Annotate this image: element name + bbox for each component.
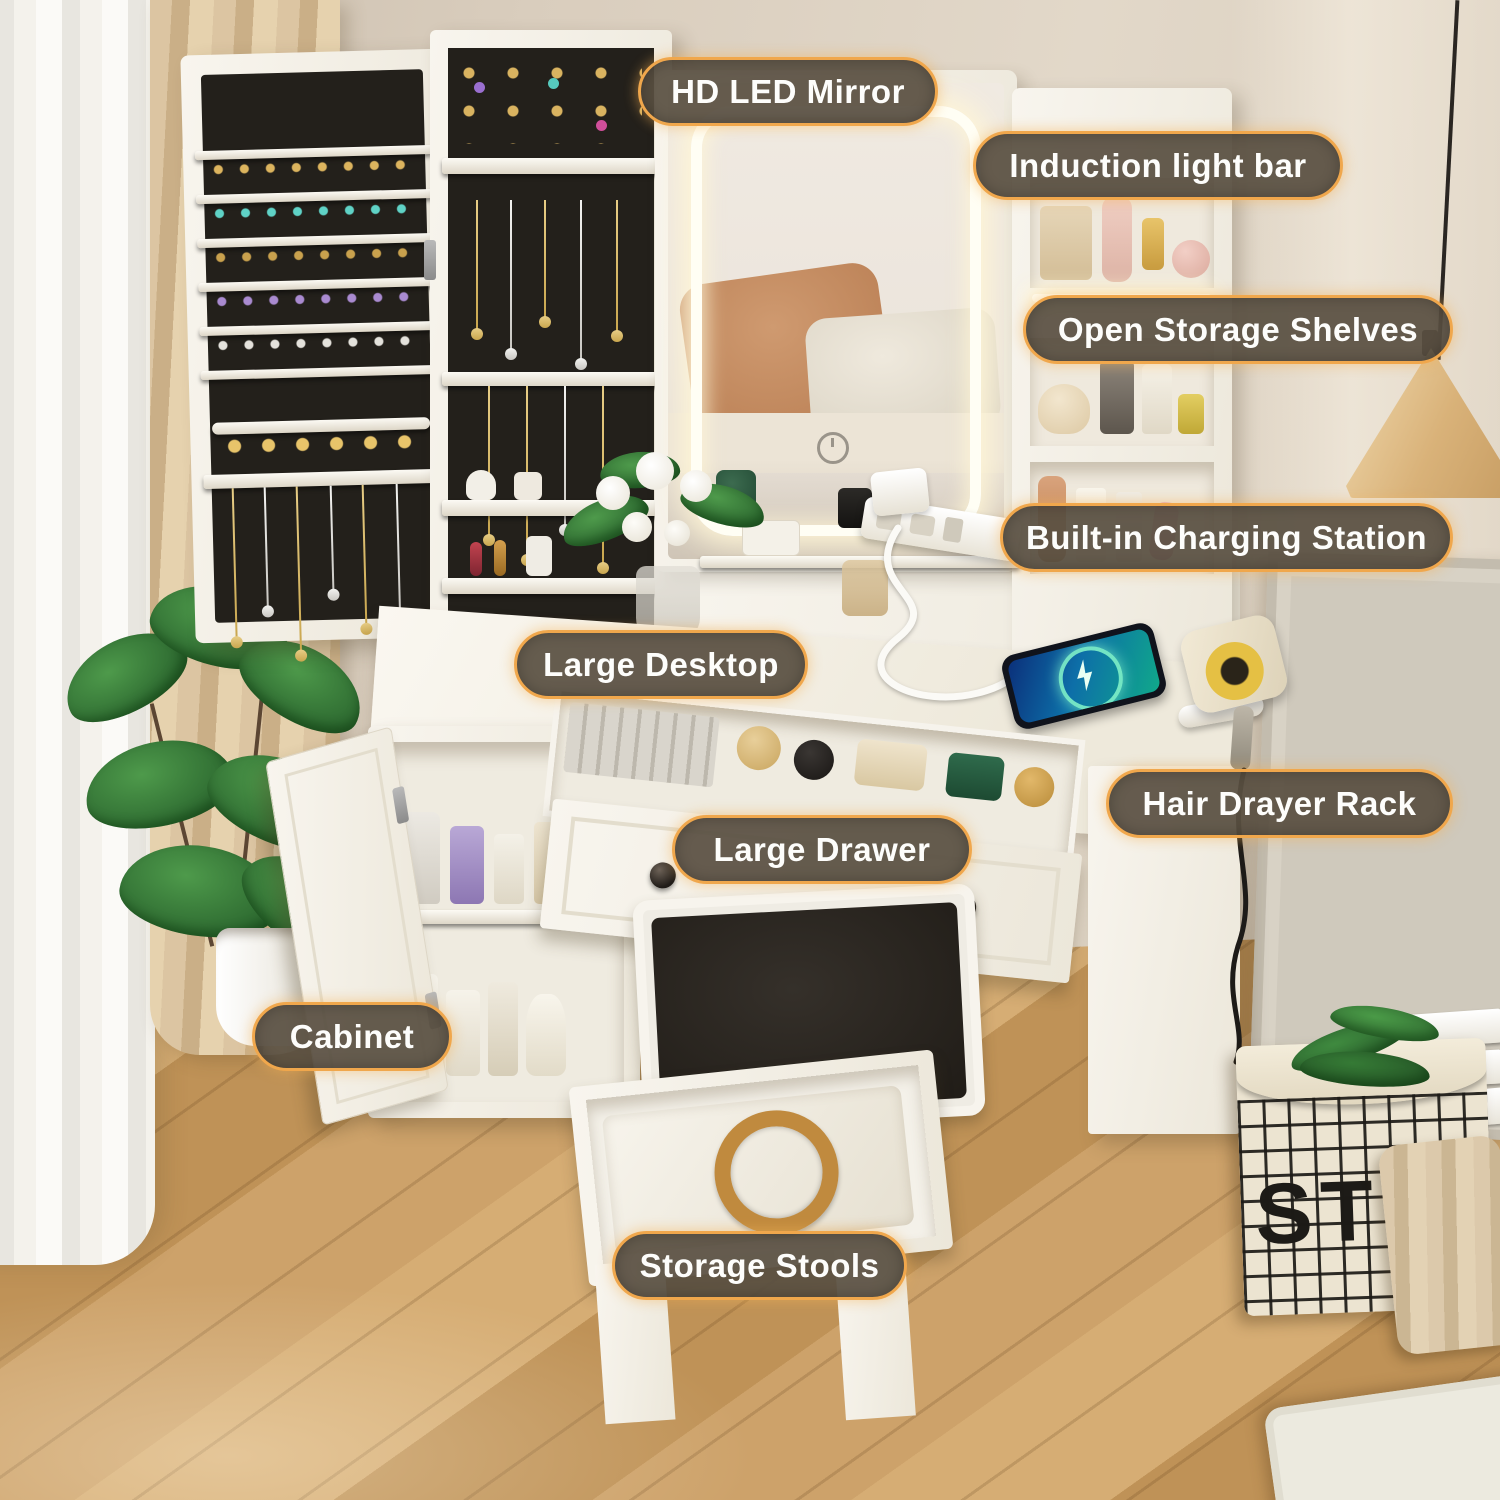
cosmetic-jar [514,472,542,500]
jewelry-door-open [180,49,457,644]
door-hinge [424,240,436,280]
draped-towel [1377,1134,1500,1356]
white-flower [664,520,690,546]
sheer-curtain [0,0,155,1265]
perfume-bottle [1100,360,1134,434]
purple-bottle [450,826,484,904]
cabinet-shelf [442,158,660,174]
ribbed-vase [526,994,566,1076]
jewelry-box [854,738,928,791]
lipstick [494,540,506,576]
necklace [616,200,618,332]
white-bottle [488,982,518,1076]
green-case [945,752,1005,802]
cosmetic-jar [466,470,496,500]
callout-induction-light-bar: Induction light bar [973,131,1343,200]
ring-gem [548,78,559,89]
lotion-bottle [494,834,524,904]
white-flower [596,476,630,510]
callout-cabinet: Cabinet [252,1002,452,1071]
callout-large-drawer: Large Drawer [672,815,972,884]
callout-hd-led-mirror: HD LED Mirror [638,57,938,126]
jewelry-cabinet [430,30,672,648]
white-flower [622,512,652,542]
white-flower [680,470,712,502]
power-touch-icon-line [831,438,834,447]
necklace [476,200,478,330]
annotated-product-image: STU HD LED Mirror Induction light bar Op… [0,0,1500,1500]
hair-dryer-face [1200,636,1270,706]
ring-gem [596,120,607,131]
necklace [544,200,546,318]
callout-large-desktop: Large Desktop [514,630,808,699]
cabinet-shelf [442,578,660,594]
ring-organizer [563,702,719,787]
callout-hair-dryer-rack: Hair Drayer Rack [1106,769,1453,838]
necklace [526,386,528,556]
pump-bottle [1142,364,1172,434]
perfume-bottle [1142,218,1164,270]
power-touch-icon [817,432,849,464]
callout-built-in-charging-station: Built-in Charging Station [1000,503,1453,572]
cosmetic-bottle [526,536,552,576]
black-jar [792,738,836,782]
necklace [580,200,582,360]
callout-open-storage-shelves: Open Storage Shelves [1023,295,1453,364]
ring-gem [474,82,485,93]
lipstick [470,542,482,576]
necklace-hook-bar [442,372,660,386]
cream-jar [1172,240,1210,278]
cream-sphere-jar [1038,384,1090,434]
white-flower [636,452,674,490]
gold-jar [1012,765,1056,809]
cosmetic-box [1040,206,1092,280]
cosmetic-bottle [1102,196,1132,282]
cosmetic-jar [1178,394,1204,434]
rings-rows [460,64,642,144]
bracelets-row [224,429,421,460]
powder-jar [735,724,783,772]
necklace [510,200,512,350]
callout-storage-stools: Storage Stools [612,1231,907,1300]
